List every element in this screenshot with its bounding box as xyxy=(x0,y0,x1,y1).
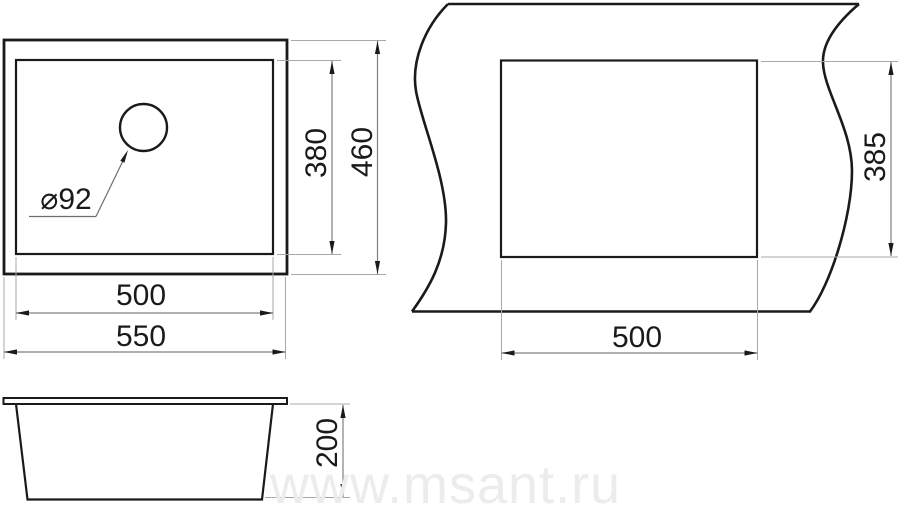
dim-label-drain-diameter: ⌀92 xyxy=(40,185,91,215)
drain-hole xyxy=(120,104,167,151)
technical-drawing-canvas: ⌀92 500 550 380 460 500 385 200 www.msan… xyxy=(0,0,900,505)
dim-label-overall-width: 550 xyxy=(116,322,166,352)
countertop-right-break-line xyxy=(810,4,859,312)
dim-label-overall-depth: 460 xyxy=(348,127,378,177)
dim-label-cutout-height: 385 xyxy=(861,132,891,182)
watermark: www.msant.ru xyxy=(270,458,621,505)
dim-label-bowl-width: 500 xyxy=(116,281,166,311)
sink-body-profile xyxy=(16,404,273,500)
sink-rim-profile xyxy=(4,398,288,404)
sink-outer-outline xyxy=(4,40,287,274)
countertop-left-break-line xyxy=(412,4,448,312)
dim-label-cutout-width: 500 xyxy=(612,323,662,353)
drawing-linework xyxy=(0,0,900,505)
cutout-view xyxy=(412,4,898,360)
cutout-opening xyxy=(501,61,757,258)
leader-arrowhead xyxy=(120,150,128,163)
sink-bowl-outline xyxy=(16,60,273,254)
dim-label-bowl-depth: 380 xyxy=(302,128,332,178)
